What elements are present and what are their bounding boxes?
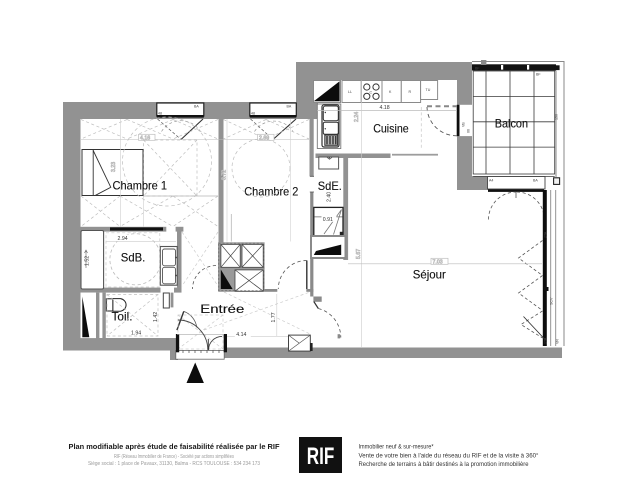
- svg-text:C: C: [370, 91, 373, 95]
- svg-text:0.91: 0.91: [323, 217, 333, 223]
- svg-text:150: 150: [555, 114, 559, 120]
- svg-text:Balcon: Balcon: [495, 116, 528, 130]
- svg-text:RIF (Réseau Immobilier de Fran: RIF (Réseau Immobilier de France) - Soci…: [114, 454, 234, 460]
- svg-text:TU: TU: [426, 88, 431, 92]
- svg-text:Recherche de terrains à bâtir: Recherche de terrains à bâtir destinés à…: [359, 461, 530, 468]
- svg-text:3.23: 3.23: [111, 162, 117, 172]
- svg-text:VB: VB: [462, 122, 466, 127]
- svg-text:2.24: 2.24: [354, 112, 360, 122]
- svg-text:1.52: 1.52: [85, 256, 91, 266]
- svg-text:Séjour: Séjour: [413, 267, 446, 281]
- svg-text:4.16: 4.16: [140, 136, 150, 142]
- svg-text:48: 48: [158, 112, 162, 116]
- svg-text:LL: LL: [348, 90, 352, 94]
- svg-text:BA: BA: [194, 105, 199, 109]
- svg-text:1.77: 1.77: [271, 312, 277, 322]
- svg-text:VR: VR: [556, 339, 560, 344]
- svg-text:48: 48: [251, 112, 255, 116]
- svg-text:2TA: 2TA: [544, 231, 548, 238]
- svg-text:Plan modifiable après étude de: Plan modifiable après étude de faisabili…: [69, 442, 280, 451]
- svg-text:4.14: 4.14: [236, 332, 246, 338]
- svg-text:2.40: 2.40: [327, 192, 333, 202]
- svg-text:Vente de votre bien à l'aide d: Vente de votre bien à l'aide du réseau d…: [359, 452, 540, 459]
- svg-text:SdE.: SdE.: [318, 179, 342, 193]
- svg-text:BA: BA: [533, 179, 538, 183]
- svg-text:06: 06: [467, 129, 471, 133]
- svg-text:Chambre 1: Chambre 1: [113, 179, 168, 193]
- svg-text:3.72: 3.72: [221, 170, 227, 180]
- svg-text:SCV: SCV: [550, 297, 554, 305]
- svg-text:BF: BF: [536, 73, 541, 77]
- svg-text:R: R: [409, 90, 412, 94]
- svg-text:Immobilier neuf & sur-mesure*: Immobilier neuf & sur-mesure*: [359, 443, 435, 450]
- svg-text:Toil.: Toil.: [112, 310, 133, 324]
- svg-text:A4: A4: [489, 179, 493, 183]
- svg-text:Chambre 2: Chambre 2: [244, 184, 298, 198]
- svg-text:1.42: 1.42: [153, 312, 159, 322]
- svg-text:Entrée: Entrée: [200, 302, 245, 316]
- svg-text:4.18: 4.18: [380, 105, 390, 111]
- svg-text:7.03: 7.03: [433, 259, 443, 265]
- svg-text:SdB.: SdB.: [121, 251, 146, 265]
- svg-text:RIF: RIF: [307, 443, 335, 470]
- svg-text:BF: BF: [475, 67, 480, 71]
- svg-text:2.94: 2.94: [118, 236, 128, 242]
- svg-text:5.67: 5.67: [356, 249, 362, 259]
- svg-text:1TA: 1TA: [544, 337, 548, 344]
- svg-text:2.69: 2.69: [259, 136, 269, 142]
- svg-text:1.94: 1.94: [131, 331, 141, 337]
- svg-text:Cuisine: Cuisine: [373, 122, 409, 136]
- svg-text:Siège social : 1 place de Pava: Siège social : 1 place de Pavaux, 31130,…: [88, 461, 260, 467]
- svg-text:BA: BA: [287, 105, 292, 109]
